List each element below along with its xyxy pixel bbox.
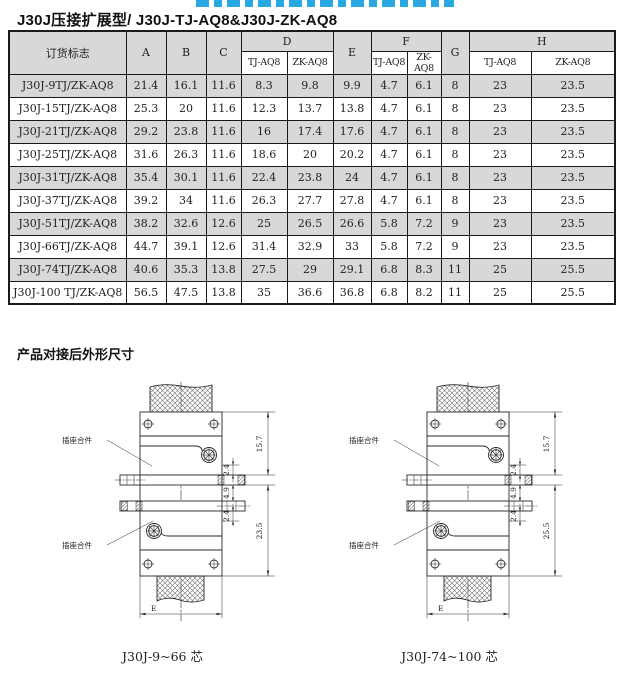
value-cell: 25.5	[531, 281, 615, 304]
value-cell: 9.9	[333, 74, 371, 97]
value-cell: 6.1	[407, 74, 441, 97]
value-cell: 23	[469, 166, 531, 189]
subheader-f-tj: TJ-AQ8	[371, 51, 407, 74]
table-row: J30J-74TJ/ZK-AQ840.635.313.827.52929.16.…	[9, 258, 615, 281]
dim-e-label: E	[151, 604, 156, 613]
subheader-d-tj: TJ-AQ8	[241, 51, 287, 74]
value-cell: 23.5	[531, 143, 615, 166]
page-title: J30J压接扩展型/ J30J-TJ-AQ8&J30J-ZK-AQ8	[17, 9, 337, 30]
value-cell: 8	[441, 74, 469, 97]
table-row: J30J-66TJ/ZK-AQ844.739.112.631.432.9335.…	[9, 235, 615, 258]
value-cell: 23	[469, 143, 531, 166]
dim-e-label: E	[438, 604, 443, 613]
drawing-caption: J30J-9~66 芯	[55, 646, 305, 665]
cable-bottom	[157, 576, 204, 602]
dim-total-height: 25.5	[542, 522, 551, 539]
value-cell: 23.5	[531, 74, 615, 97]
value-cell: 11.6	[206, 143, 241, 166]
value-cell: 23	[469, 97, 531, 120]
drawing-right-canvas: 插座合件 插座合件 2.4 4.9 2.4 15.7 25.5 E	[342, 378, 592, 633]
table-row: J30J-9TJ/ZK-AQ821.416.111.68.39.89.94.76…	[9, 74, 615, 97]
value-cell: 20	[166, 97, 206, 120]
value-cell: 4.7	[371, 189, 407, 212]
value-cell: 23.5	[531, 189, 615, 212]
value-cell: 4.7	[371, 74, 407, 97]
subheader-d-zk: ZK-AQ8	[287, 51, 333, 74]
value-cell: 6.8	[371, 258, 407, 281]
value-cell: 4.7	[371, 97, 407, 120]
part-label-top: 插座合件	[349, 435, 379, 445]
value-cell: 20.2	[333, 143, 371, 166]
value-cell: 31.4	[241, 235, 287, 258]
header-e: E	[333, 31, 371, 74]
value-cell: 23	[469, 235, 531, 258]
part-label-bottom: 插座合件	[349, 540, 379, 550]
value-cell: 16.1	[166, 74, 206, 97]
value-cell: 17.6	[333, 120, 371, 143]
header-b: B	[166, 31, 206, 74]
subheader-h-zk: ZK-AQ8	[531, 51, 615, 74]
section-title: 产品对接后外形尺寸	[17, 344, 134, 363]
value-cell: 6.1	[407, 143, 441, 166]
subheader-h-tj: TJ-AQ8	[469, 51, 531, 74]
order-mark-cell: J30J-66TJ/ZK-AQ8	[9, 235, 126, 258]
table-row: J30J-51TJ/ZK-AQ838.232.612.62526.526.65.…	[9, 212, 615, 235]
value-cell: 13.8	[206, 281, 241, 304]
value-cell: 22.4	[241, 166, 287, 189]
value-cell: 16	[241, 120, 287, 143]
value-cell: 23	[469, 189, 531, 212]
header-order-mark: 订货标志	[9, 31, 126, 74]
clipped-heading-remnant	[196, 0, 454, 7]
value-cell: 8	[441, 97, 469, 120]
value-cell: 12.6	[206, 235, 241, 258]
value-cell: 12.6	[206, 212, 241, 235]
value-cell: 25.5	[531, 258, 615, 281]
value-cell: 23.5	[531, 97, 615, 120]
drawing-left-canvas: 插座合件 插座合件 2.4 4.9 2.4 15.7 23.5 E	[55, 378, 305, 633]
value-cell: 32.9	[287, 235, 333, 258]
value-cell: 56.5	[126, 281, 166, 304]
value-cell: 5.8	[371, 212, 407, 235]
value-cell: 23.8	[166, 120, 206, 143]
order-mark-cell: J30J-74TJ/ZK-AQ8	[9, 258, 126, 281]
order-mark-cell: J30J-21TJ/ZK-AQ8	[9, 120, 126, 143]
spec-table-body: J30J-9TJ/ZK-AQ821.416.111.68.39.89.94.76…	[9, 74, 615, 304]
value-cell: 26.6	[333, 212, 371, 235]
dim-4-9: 4.9	[509, 487, 518, 499]
value-cell: 39.2	[126, 189, 166, 212]
value-cell: 32.6	[166, 212, 206, 235]
value-cell: 4.7	[371, 120, 407, 143]
header-h: H	[469, 31, 615, 51]
value-cell: 24	[333, 166, 371, 189]
dim-15-7: 15.7	[255, 435, 264, 452]
value-cell: 11	[441, 281, 469, 304]
value-cell: 11.6	[206, 97, 241, 120]
dim-total-height: 23.5	[255, 522, 264, 539]
value-cell: 23.5	[531, 166, 615, 189]
table-row: J30J-25TJ/ZK-AQ831.626.311.618.62020.24.…	[9, 143, 615, 166]
value-cell: 11.6	[206, 74, 241, 97]
value-cell: 4.7	[371, 166, 407, 189]
value-cell: 27.7	[287, 189, 333, 212]
value-cell: 20	[287, 143, 333, 166]
value-cell: 8	[441, 143, 469, 166]
value-cell: 6.1	[407, 189, 441, 212]
value-cell: 35.4	[126, 166, 166, 189]
dim-4-9: 4.9	[222, 487, 231, 499]
datasheet-page: J30J压接扩展型/ J30J-TJ-AQ8&J30J-ZK-AQ8 订货标志 …	[0, 0, 622, 682]
value-cell: 25	[469, 281, 531, 304]
value-cell: 8	[441, 189, 469, 212]
value-cell: 44.7	[126, 235, 166, 258]
value-cell: 13.8	[333, 97, 371, 120]
value-cell: 6.1	[407, 120, 441, 143]
value-cell: 4.7	[371, 143, 407, 166]
value-cell: 36.6	[287, 281, 333, 304]
value-cell: 11	[441, 258, 469, 281]
value-cell: 33	[333, 235, 371, 258]
table-row: J30J-15TJ/ZK-AQ825.32011.612.313.713.84.…	[9, 97, 615, 120]
table-row: J30J-37TJ/ZK-AQ839.23411.626.327.727.84.…	[9, 189, 615, 212]
drawing-right: 插座合件 插座合件 2.4 4.9 2.4 15.7 25.5 E J30J-7…	[342, 378, 592, 665]
value-cell: 6.1	[407, 97, 441, 120]
subheader-f-zk: ZK-AQ8	[407, 51, 441, 74]
table-row: J30J-100 TJ/ZK-AQ856.547.513.83536.636.8…	[9, 281, 615, 304]
value-cell: 8.3	[241, 74, 287, 97]
value-cell: 26.3	[241, 189, 287, 212]
value-cell: 40.6	[126, 258, 166, 281]
value-cell: 30.1	[166, 166, 206, 189]
value-cell: 29	[287, 258, 333, 281]
value-cell: 23	[469, 74, 531, 97]
value-cell: 21.4	[126, 74, 166, 97]
value-cell: 25	[241, 212, 287, 235]
value-cell: 6.8	[371, 281, 407, 304]
value-cell: 23	[469, 212, 531, 235]
cable-bottom	[444, 576, 491, 602]
value-cell: 9	[441, 235, 469, 258]
value-cell: 17.4	[287, 120, 333, 143]
spec-table: 订货标志 A B C D E F G H TJ-AQ8 ZK-AQ8 TJ-AQ…	[8, 30, 616, 305]
drawing-caption: J30J-74~100 芯	[342, 646, 592, 665]
value-cell: 27.5	[241, 258, 287, 281]
table-row: J30J-21TJ/ZK-AQ829.223.811.61617.417.64.…	[9, 120, 615, 143]
order-mark-cell: J30J-37TJ/ZK-AQ8	[9, 189, 126, 212]
value-cell: 34	[166, 189, 206, 212]
value-cell: 11.6	[206, 166, 241, 189]
value-cell: 35.3	[166, 258, 206, 281]
value-cell: 9.8	[287, 74, 333, 97]
value-cell: 47.5	[166, 281, 206, 304]
order-mark-cell: J30J-100 TJ/ZK-AQ8	[9, 281, 126, 304]
dim-2-4-upper: 2.4	[222, 464, 231, 476]
value-cell: 13.7	[287, 97, 333, 120]
value-cell: 26.3	[166, 143, 206, 166]
header-f: F	[371, 31, 441, 51]
value-cell: 27.8	[333, 189, 371, 212]
value-cell: 35	[241, 281, 287, 304]
value-cell: 25.3	[126, 97, 166, 120]
mated-connector-outline-drawing: 插座合件 插座合件 2.4 4.9 2.4 15.7 23.5 E	[55, 378, 305, 628]
value-cell: 8	[441, 166, 469, 189]
value-cell: 11.6	[206, 189, 241, 212]
value-cell: 26.5	[287, 212, 333, 235]
cable-top	[150, 385, 212, 412]
value-cell: 23.5	[531, 212, 615, 235]
value-cell: 36.8	[333, 281, 371, 304]
value-cell: 6.1	[407, 166, 441, 189]
value-cell: 8.2	[407, 281, 441, 304]
value-cell: 25	[469, 258, 531, 281]
order-mark-cell: J30J-25TJ/ZK-AQ8	[9, 143, 126, 166]
value-cell: 8.3	[407, 258, 441, 281]
value-cell: 12.3	[241, 97, 287, 120]
value-cell: 7.2	[407, 212, 441, 235]
value-cell: 38.2	[126, 212, 166, 235]
value-cell: 13.8	[206, 258, 241, 281]
dim-15-7: 15.7	[542, 435, 551, 452]
value-cell: 23	[469, 120, 531, 143]
header-a: A	[126, 31, 166, 74]
value-cell: 5.8	[371, 235, 407, 258]
drawing-left: 插座合件 插座合件 2.4 4.9 2.4 15.7 23.5 E J30J-9…	[55, 378, 305, 665]
value-cell: 8	[441, 120, 469, 143]
cable-top	[437, 385, 499, 412]
order-mark-cell: J30J-51TJ/ZK-AQ8	[9, 212, 126, 235]
value-cell: 23.5	[531, 120, 615, 143]
value-cell: 11.6	[206, 120, 241, 143]
part-label-bottom: 插座合件	[62, 540, 92, 550]
value-cell: 18.6	[241, 143, 287, 166]
header-g: G	[441, 31, 469, 74]
value-cell: 31.6	[126, 143, 166, 166]
order-mark-cell: J30J-15TJ/ZK-AQ8	[9, 97, 126, 120]
spec-table-header: 订货标志 A B C D E F G H TJ-AQ8 ZK-AQ8 TJ-AQ…	[9, 31, 615, 74]
header-c: C	[206, 31, 241, 74]
dim-2-4-upper: 2.4	[509, 464, 518, 476]
mated-connector-outline-drawing: 插座合件 插座合件 2.4 4.9 2.4 15.7 25.5 E	[342, 378, 592, 628]
value-cell: 29.1	[333, 258, 371, 281]
dim-2-4-lower: 2.4	[509, 510, 518, 522]
table-row: J30J-31TJ/ZK-AQ835.430.111.622.423.8244.…	[9, 166, 615, 189]
value-cell: 39.1	[166, 235, 206, 258]
value-cell: 23.8	[287, 166, 333, 189]
value-cell: 9	[441, 212, 469, 235]
order-mark-cell: J30J-9TJ/ZK-AQ8	[9, 74, 126, 97]
header-d: D	[241, 31, 333, 51]
value-cell: 29.2	[126, 120, 166, 143]
dim-2-4-lower: 2.4	[222, 510, 231, 522]
value-cell: 23.5	[531, 235, 615, 258]
part-label-top: 插座合件	[62, 435, 92, 445]
order-mark-cell: J30J-31TJ/ZK-AQ8	[9, 166, 126, 189]
value-cell: 7.2	[407, 235, 441, 258]
